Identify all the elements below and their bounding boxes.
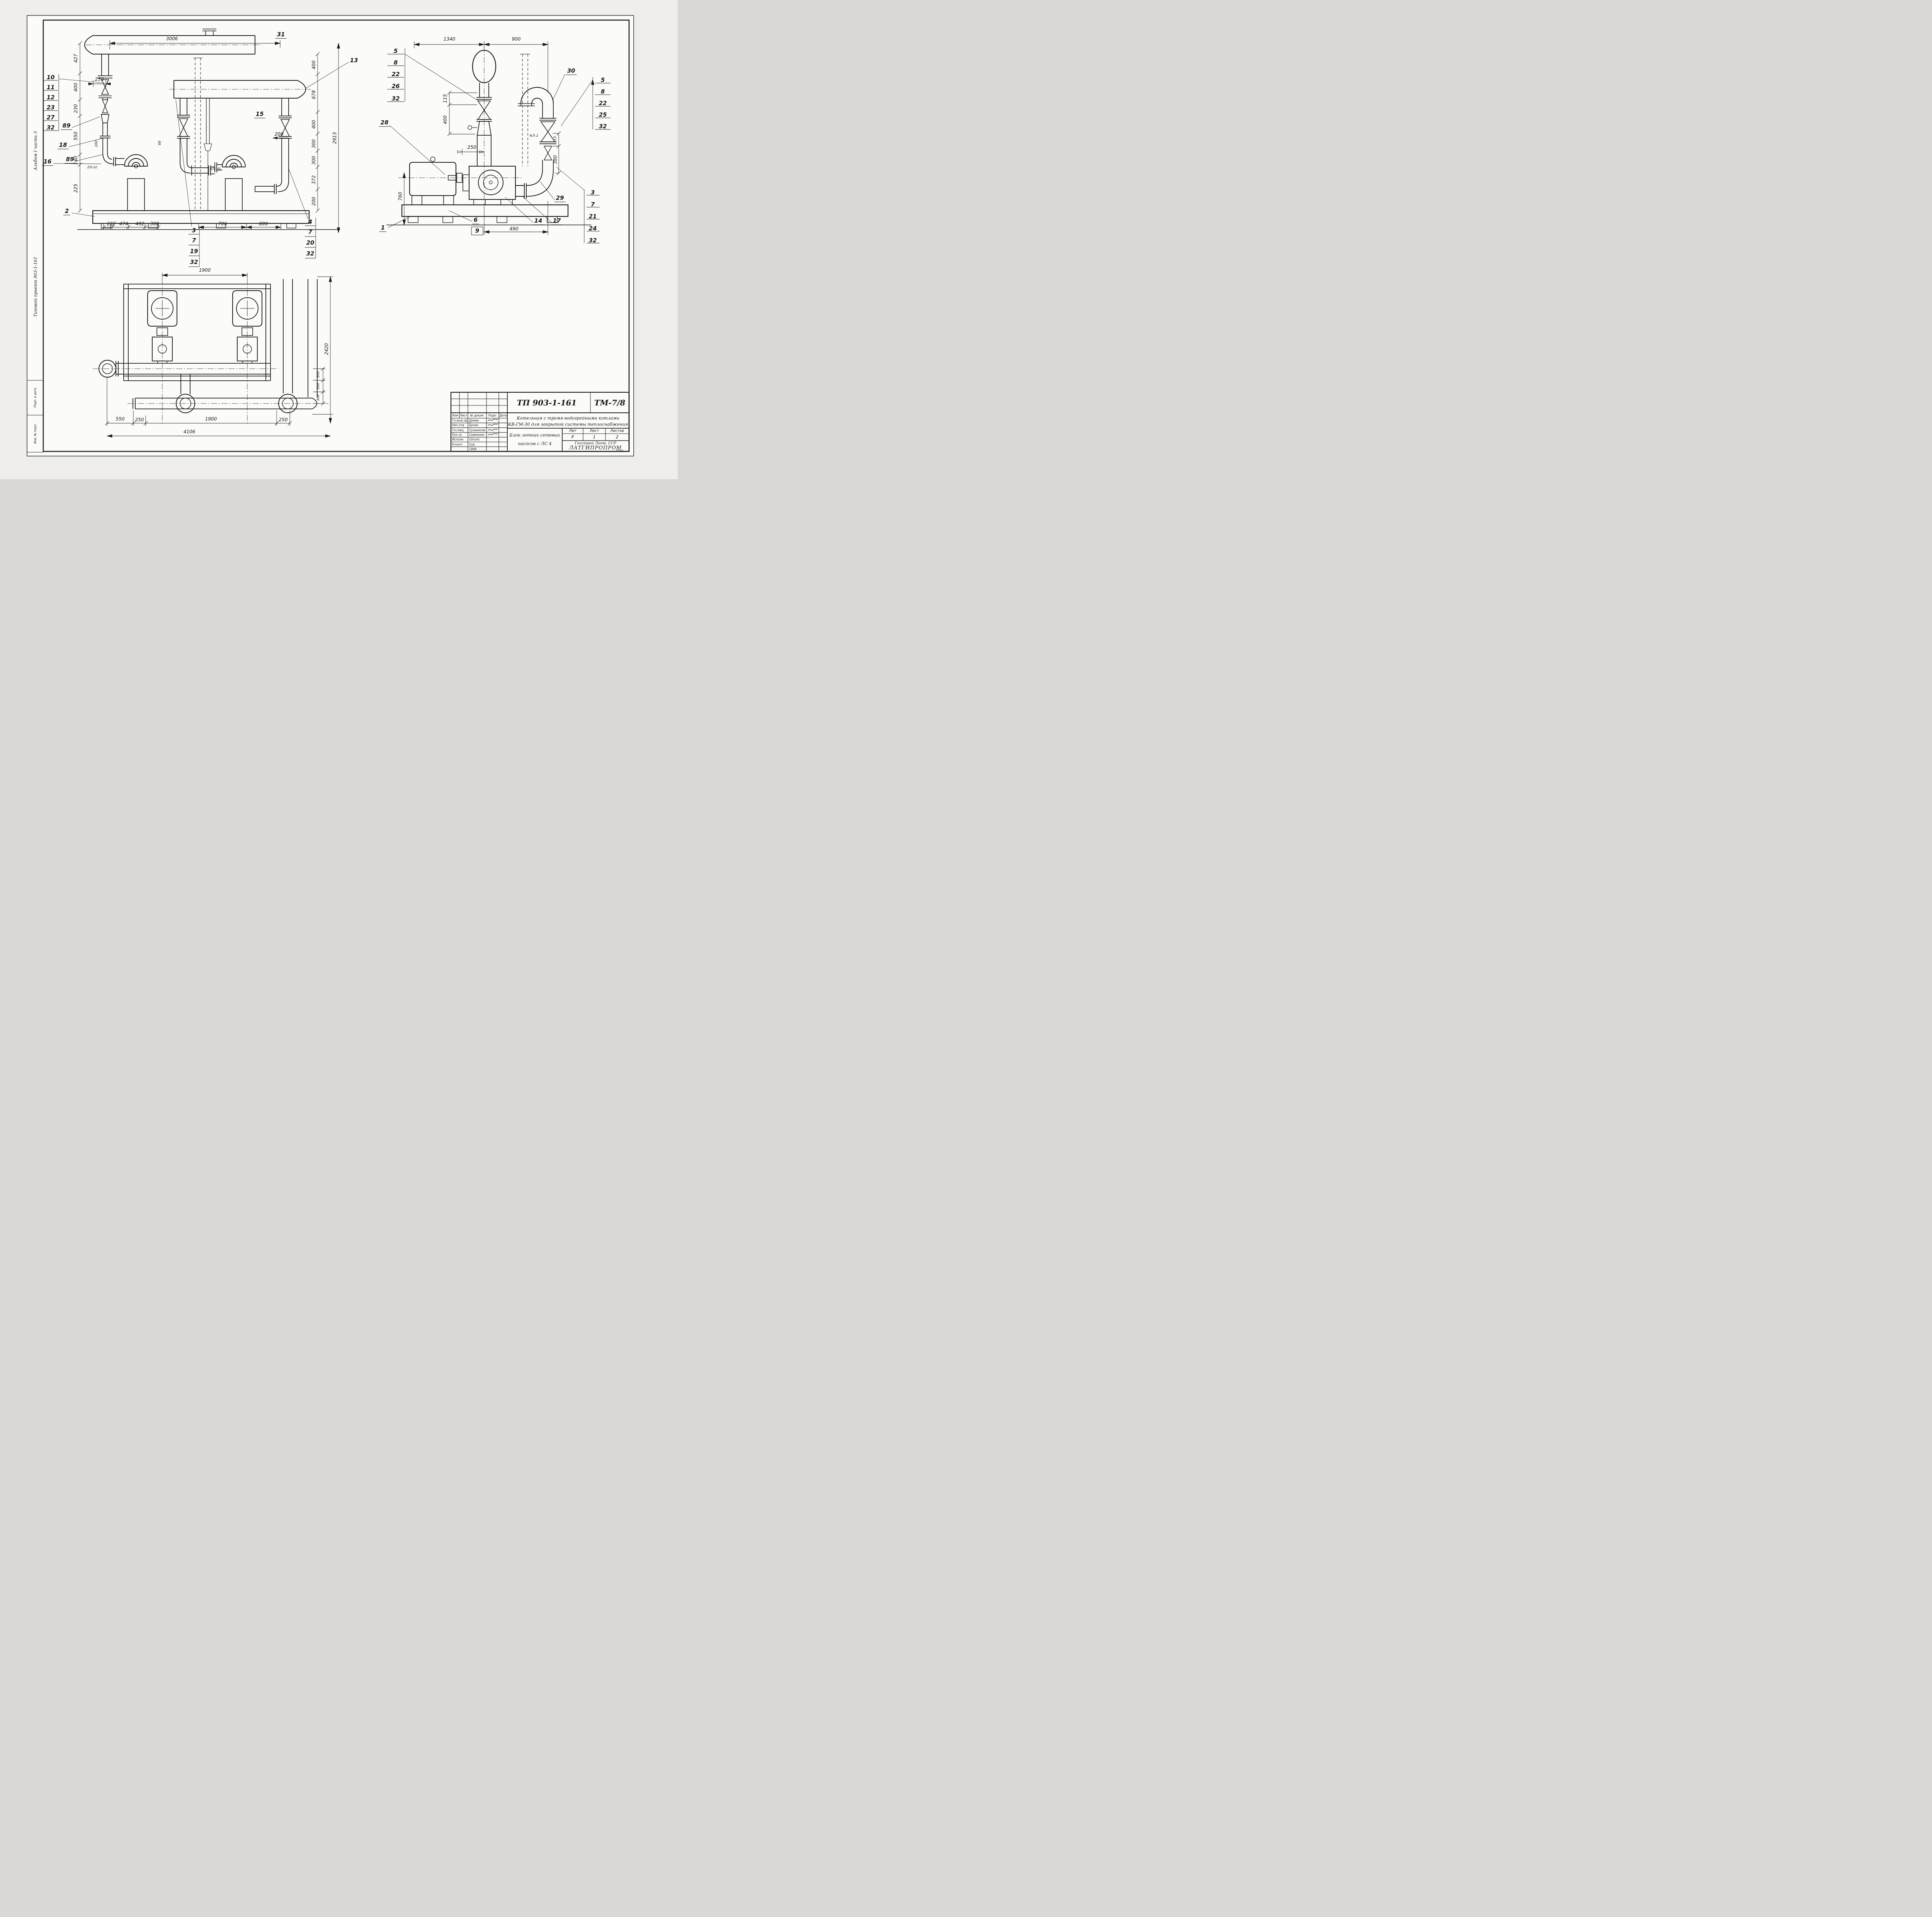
- front-stack4-item: 32: [306, 250, 315, 257]
- front-left-chain-dim: 225: [73, 184, 78, 193]
- blueprint-sheet: 3006 250 31 13 15 10 11 12 23 27 32 89 1…: [0, 0, 678, 479]
- margin-stamp-podp: Подп. и дата: [34, 388, 37, 407]
- side-stack-lr-item: 32: [589, 237, 597, 244]
- plan-bottom-dim: 250: [279, 417, 288, 422]
- front-callout-89a: 89: [61, 122, 72, 130]
- lit-value: Р: [571, 435, 574, 440]
- side-callout-9: 9: [475, 227, 479, 234]
- front-left-chain-dim: 400: [73, 83, 78, 92]
- side-dim-760: 760: [398, 192, 403, 201]
- side-stack-right-item: 8: [601, 88, 605, 95]
- side-callout-17: 17: [551, 217, 563, 225]
- front-stack4-item: 7: [308, 228, 312, 235]
- org-line2: ЛАТГИПРОПРОМ: [569, 445, 622, 451]
- front-stack3-item: 19: [190, 248, 198, 255]
- front-bottom-dim: 474: [119, 221, 128, 226]
- front-dim-706: 706: [218, 221, 227, 226]
- side-callout-28: 28: [379, 119, 390, 127]
- front-callout-4: 4: [308, 218, 312, 225]
- front-right-chain-dim: 300: [311, 156, 316, 165]
- front-callout-15: 15: [254, 111, 265, 118]
- side-tag-kl1: КЛ-1: [530, 134, 538, 138]
- plan-chain-300: 300: [316, 394, 320, 401]
- side-dim-400: 400: [442, 116, 448, 124]
- side-dim-250: 250: [468, 145, 476, 150]
- side-stack-right-item: 22: [599, 100, 607, 107]
- front-mark-31: 31: [276, 31, 287, 39]
- front-callout-2: 2: [63, 208, 70, 215]
- front-stack-item: 12: [47, 94, 55, 101]
- front-right-chain-dim: 372: [311, 175, 316, 184]
- side-stack-lr-item: 24: [589, 225, 597, 232]
- side-stack-lr-item: 3: [591, 189, 595, 196]
- front-stack-item: 23: [47, 104, 55, 111]
- front-dim-260: 260: [95, 140, 99, 147]
- doc-title-line1: Котельная с тремя водогрейными котлами: [517, 416, 619, 421]
- front-dim-68: 68: [158, 141, 162, 145]
- front-bottom-dim: 232: [107, 221, 116, 226]
- margin-project-text: Типовой проект 903-1-161: [33, 257, 38, 317]
- staff-name: Сур.: [469, 443, 476, 446]
- side-callout-6: 6: [472, 216, 479, 224]
- side-stack-right-item: 5: [601, 77, 605, 83]
- side-stack-lr-item: 21: [589, 213, 597, 220]
- plan-chain-300: 300: [316, 371, 320, 378]
- side-stack-left-item: 26: [392, 83, 400, 90]
- side-dim-900: 900: [512, 36, 521, 42]
- front-stack3-item: 32: [190, 259, 198, 266]
- staff-name: Сетупс: [469, 438, 480, 441]
- staff-role: Исполн.: [452, 438, 464, 441]
- titleblock-col-izm: Изм: [452, 414, 458, 417]
- side-callout-14: 14: [533, 217, 544, 225]
- front-dim-200: 200: [275, 131, 284, 137]
- margin-album-text: Альбом I часть 3: [33, 131, 38, 170]
- side-stack-left-item: 32: [392, 95, 400, 102]
- front-stack3-item: 7: [192, 237, 196, 244]
- org-city: Рига: [616, 449, 623, 452]
- titleblock-col-data: Дата: [499, 414, 507, 417]
- side-stack-right-item: 32: [599, 123, 607, 130]
- plan-chain-300: 300: [316, 383, 320, 389]
- front-right-chain-dim: 300: [311, 140, 316, 148]
- subject-line2: насосов с ЛС 4: [518, 441, 551, 446]
- titleblock-code-tp: ТП 903-1-161: [517, 398, 577, 407]
- front-dim-800: 800: [259, 221, 268, 226]
- titleblock-col-dokum: № докум.: [470, 414, 485, 417]
- staff-name: Думан: [469, 419, 479, 422]
- front-dim-total-2913: 2913: [332, 132, 337, 144]
- front-stack-item: 32: [47, 124, 55, 131]
- front-tag-kl7: КЛ-VII: [210, 167, 221, 171]
- titleblock-col-podp: Подп.: [488, 414, 497, 417]
- front-stack-item: 27: [47, 114, 55, 121]
- staff-role: Рук.гр.: [452, 433, 463, 437]
- side-callout-1: 1: [379, 224, 386, 232]
- front-left-chain-dim: 140: [73, 156, 78, 165]
- staff-name: 1968: [469, 448, 476, 451]
- front-left-chain-dim: 230: [73, 104, 78, 113]
- front-callout-16: 16: [42, 158, 53, 166]
- side-callout-29: 29: [554, 194, 566, 202]
- titleblock-code-tm: ТМ-7/8: [594, 398, 625, 407]
- lit-header: Листов: [610, 429, 624, 433]
- front-callout-3: 3: [192, 227, 196, 234]
- staff-name: Суханосов: [469, 429, 485, 432]
- side-dim-115b: 115: [553, 136, 557, 143]
- side-dim-380: 380: [553, 155, 558, 164]
- front-bottom-dim: 492: [136, 221, 145, 226]
- side-dim-1340: 1340: [444, 36, 456, 42]
- staff-role: Гл.инж.пр.: [452, 419, 468, 422]
- front-right-chain-dim: 678: [311, 90, 316, 99]
- staff-name: Букин: [469, 424, 478, 427]
- side-stack-right-item: 25: [599, 111, 607, 118]
- lit-value: 2: [616, 435, 619, 440]
- doc-title-line2: КВ-ГМ-30 для закрытой системы теплоснабж…: [508, 422, 628, 427]
- front-right-chain-dim: 400: [311, 120, 316, 129]
- front-stack4-item: 20: [306, 239, 315, 246]
- side-dim-490: 490: [510, 226, 519, 232]
- subject-line1: Блок летних сетевых: [510, 433, 560, 438]
- lit-header: Лист: [590, 429, 599, 433]
- staff-role: Гл.спец: [452, 429, 464, 432]
- plan-dim-1900-top: 1900: [199, 267, 211, 273]
- staff-role: Н.конт.: [452, 443, 463, 446]
- side-stack-lr-item: 7: [591, 201, 595, 208]
- front-dim-250: 250: [95, 77, 104, 82]
- front-left-chain-dim: 427: [73, 54, 78, 63]
- front-right-chain-dim: 200: [311, 197, 316, 206]
- titleblock-col-list: Лист: [460, 414, 467, 417]
- front-callout-13: 13: [350, 57, 358, 64]
- lit-header: Лит: [569, 429, 577, 433]
- front-bottom-dim: 308: [150, 221, 159, 226]
- front-callout-18: 18: [58, 141, 69, 149]
- plan-dim-4106: 4106: [184, 429, 196, 434]
- plan-bottom-dim: 1900: [205, 416, 217, 422]
- margin-stamp-inv: Инв. № подл.: [34, 424, 37, 444]
- front-stack-item: 11: [47, 84, 55, 91]
- plan-dim-2420: 2420: [324, 343, 329, 355]
- front-tag-ll6: ЛЛ-VI: [87, 166, 97, 170]
- staff-name: Сурмонин: [469, 433, 484, 437]
- plan-bottom-dim: 250: [135, 417, 144, 422]
- side-stack-left-item: 22: [392, 71, 400, 78]
- front-stack-item: 10: [47, 74, 55, 81]
- side-dim-115a: 115: [442, 94, 448, 103]
- front-dim-3006: 3006: [166, 36, 178, 41]
- side-callout-30: 30: [566, 67, 577, 75]
- lit-value: 1: [593, 435, 596, 440]
- side-stack-left-item: 8: [394, 59, 398, 66]
- front-right-chain-dim: 400: [311, 61, 316, 70]
- front-left-chain-dim: 550: [73, 132, 78, 141]
- staff-role: Нач.отд: [452, 424, 464, 427]
- side-stack-left-item: 5: [394, 48, 398, 54]
- plan-bottom-dim: 550: [116, 416, 125, 422]
